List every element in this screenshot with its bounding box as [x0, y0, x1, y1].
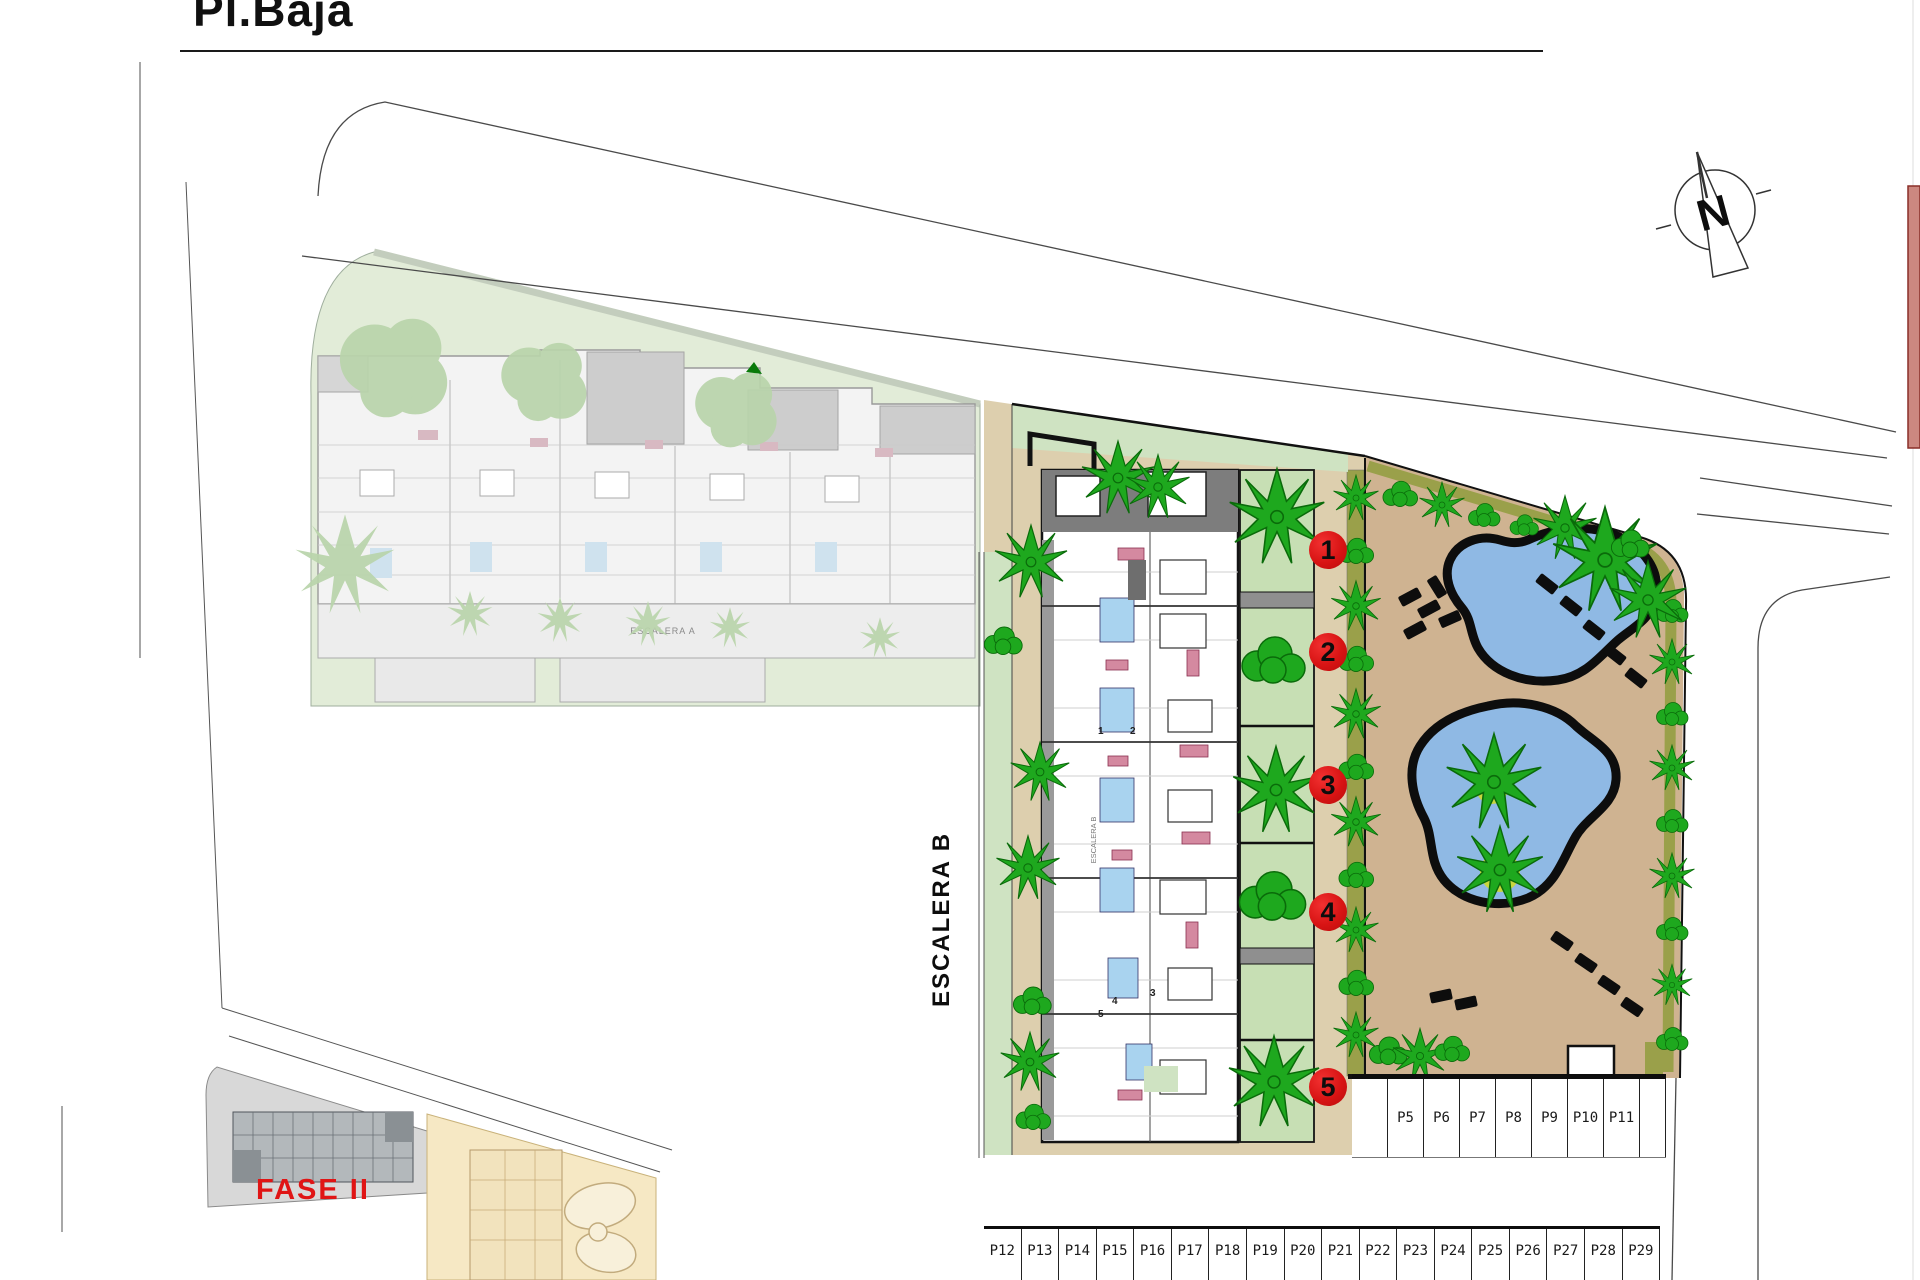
fase-ii-label: FASE II — [256, 1174, 370, 1207]
parking-stall-label: P8 — [1505, 1110, 1522, 1126]
parking-row-lower: P12 P13 P14 P15 P16 P17 P18 P19 P20 — [984, 1226, 1660, 1280]
parking-stall-label: P21 — [1328, 1243, 1353, 1259]
parking-stall-label: P15 — [1102, 1243, 1127, 1259]
parking-stall: P8 — [1496, 1079, 1532, 1157]
parking-stall-label: P25 — [1478, 1243, 1503, 1259]
parking-stall: P14 — [1059, 1229, 1097, 1280]
parking-stall: P10 — [1568, 1079, 1604, 1157]
parking-stall — [1640, 1079, 1666, 1157]
parking-stall: P23 — [1397, 1229, 1435, 1280]
parking-stall: P15 — [1097, 1229, 1135, 1280]
parking-stall: P11 — [1604, 1079, 1640, 1157]
parking-stall: P7 — [1460, 1079, 1496, 1157]
parking-stall: P28 — [1585, 1229, 1623, 1280]
parking-stall: P26 — [1510, 1229, 1548, 1280]
parking-stall-label: P10 — [1573, 1110, 1598, 1126]
parking-stall-label: P20 — [1290, 1243, 1315, 1259]
unit-marker[interactable]: 4 — [1309, 893, 1347, 931]
parking-stall: P9 — [1532, 1079, 1568, 1157]
parking-stall-label: P23 — [1403, 1243, 1428, 1259]
parking-stall: P27 — [1547, 1229, 1585, 1280]
parking-stall-label: P12 — [990, 1243, 1015, 1259]
parking-stall-label: P17 — [1177, 1243, 1202, 1259]
escalera-b-small-label: ESCALERA B — [1089, 817, 1098, 864]
parking-row-upper: P5 P6 P7 P8 P9 P10 P11 — [1352, 1074, 1666, 1158]
parking-stall: P6 — [1424, 1079, 1460, 1157]
unit-marker[interactable]: 2 — [1309, 633, 1347, 671]
parking-stall-label: P18 — [1215, 1243, 1240, 1259]
plan-unit-number: 3 — [1150, 988, 1156, 999]
site-plan-canvas: ESCALERA A — [0, 0, 1920, 1280]
plan-unit-number: 4 — [1112, 996, 1118, 1007]
parking-stall-label: P9 — [1541, 1110, 1558, 1126]
unit-marker[interactable]: 3 — [1309, 766, 1347, 804]
parking-stall: P13 — [1022, 1229, 1060, 1280]
unit-marker-number: 3 — [1320, 770, 1335, 801]
parking-stall-label: P29 — [1628, 1243, 1653, 1259]
compass-letter: N — [1692, 186, 1735, 242]
unit-marker[interactable]: 5 — [1309, 1068, 1347, 1106]
unit-marker-number: 1 — [1320, 535, 1335, 566]
unit-marker-number: 4 — [1320, 897, 1335, 928]
north-compass: N — [1656, 152, 1771, 277]
parking-stall: P20 — [1285, 1229, 1323, 1280]
parking-stall: P25 — [1472, 1229, 1510, 1280]
parking-stall: P19 — [1247, 1229, 1285, 1280]
parking-stall-label: P27 — [1553, 1243, 1578, 1259]
parking-stall-label: P22 — [1365, 1243, 1390, 1259]
edge-strip — [1908, 186, 1920, 448]
parking-stall: P18 — [1209, 1229, 1247, 1280]
parking-stall-label: P11 — [1609, 1110, 1634, 1126]
pool-kiosk — [1568, 1046, 1614, 1076]
unit-marker[interactable]: 1 — [1309, 531, 1347, 569]
plan-unit-number: 2 — [1130, 726, 1136, 737]
plan-unit-number: 5 — [1098, 1009, 1104, 1020]
parking-stall-label: P26 — [1516, 1243, 1541, 1259]
parking-stall-label: P14 — [1065, 1243, 1090, 1259]
title-underline — [180, 50, 1543, 52]
plan-unit-number: 1 — [1098, 726, 1104, 737]
unit-marker-number: 5 — [1320, 1072, 1335, 1103]
parking-stall-label: P24 — [1440, 1243, 1465, 1259]
parking-stall-label: P19 — [1253, 1243, 1278, 1259]
parking-stall-label: P5 — [1397, 1110, 1414, 1126]
unit-marker-number: 2 — [1320, 637, 1335, 668]
parking-stall: P16 — [1134, 1229, 1172, 1280]
page-title: Pl.Baja — [193, 0, 353, 37]
escalera-b-label: ESCALERA B — [928, 824, 962, 1014]
parking-stall: P21 — [1322, 1229, 1360, 1280]
faded-parcel-phase1: ESCALERA A — [296, 252, 981, 706]
parking-stall: P5 — [1388, 1079, 1424, 1157]
parking-stall: P22 — [1360, 1229, 1398, 1280]
parking-stall-label: P7 — [1469, 1110, 1486, 1126]
parking-stall-label: P13 — [1027, 1243, 1052, 1259]
parking-stall: P12 — [984, 1229, 1022, 1280]
parking-stall-label: P16 — [1140, 1243, 1165, 1259]
parking-stall — [1352, 1079, 1388, 1157]
parking-stall: P24 — [1435, 1229, 1473, 1280]
parking-stall: P29 — [1623, 1229, 1661, 1280]
parking-stall-label: P6 — [1433, 1110, 1450, 1126]
parking-stall-label: P28 — [1591, 1243, 1616, 1259]
parking-stall: P17 — [1172, 1229, 1210, 1280]
building-escalera-b: ESCALERA B — [1042, 470, 1238, 1142]
